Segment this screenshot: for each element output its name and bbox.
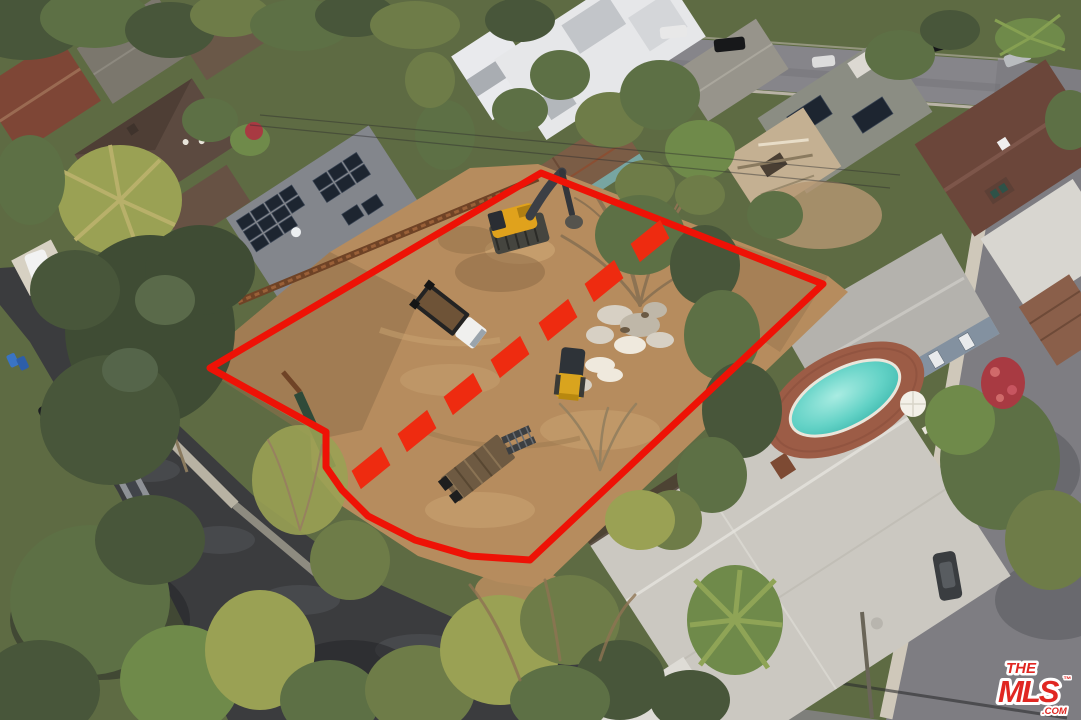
excavator-bucket xyxy=(565,215,583,229)
watermark-mls: MLS xyxy=(998,674,1060,709)
bougainvillea-pink xyxy=(245,122,263,140)
watermark-tm: ™ xyxy=(1063,675,1071,684)
aerial-photo: THE MLS ™ .COM xyxy=(0,0,1081,720)
fan-palm xyxy=(687,565,783,675)
scene-svg: THE MLS ™ .COM xyxy=(0,0,1081,720)
bougainvillea-red xyxy=(981,357,1025,409)
watermark-com: .COM xyxy=(1042,706,1068,717)
